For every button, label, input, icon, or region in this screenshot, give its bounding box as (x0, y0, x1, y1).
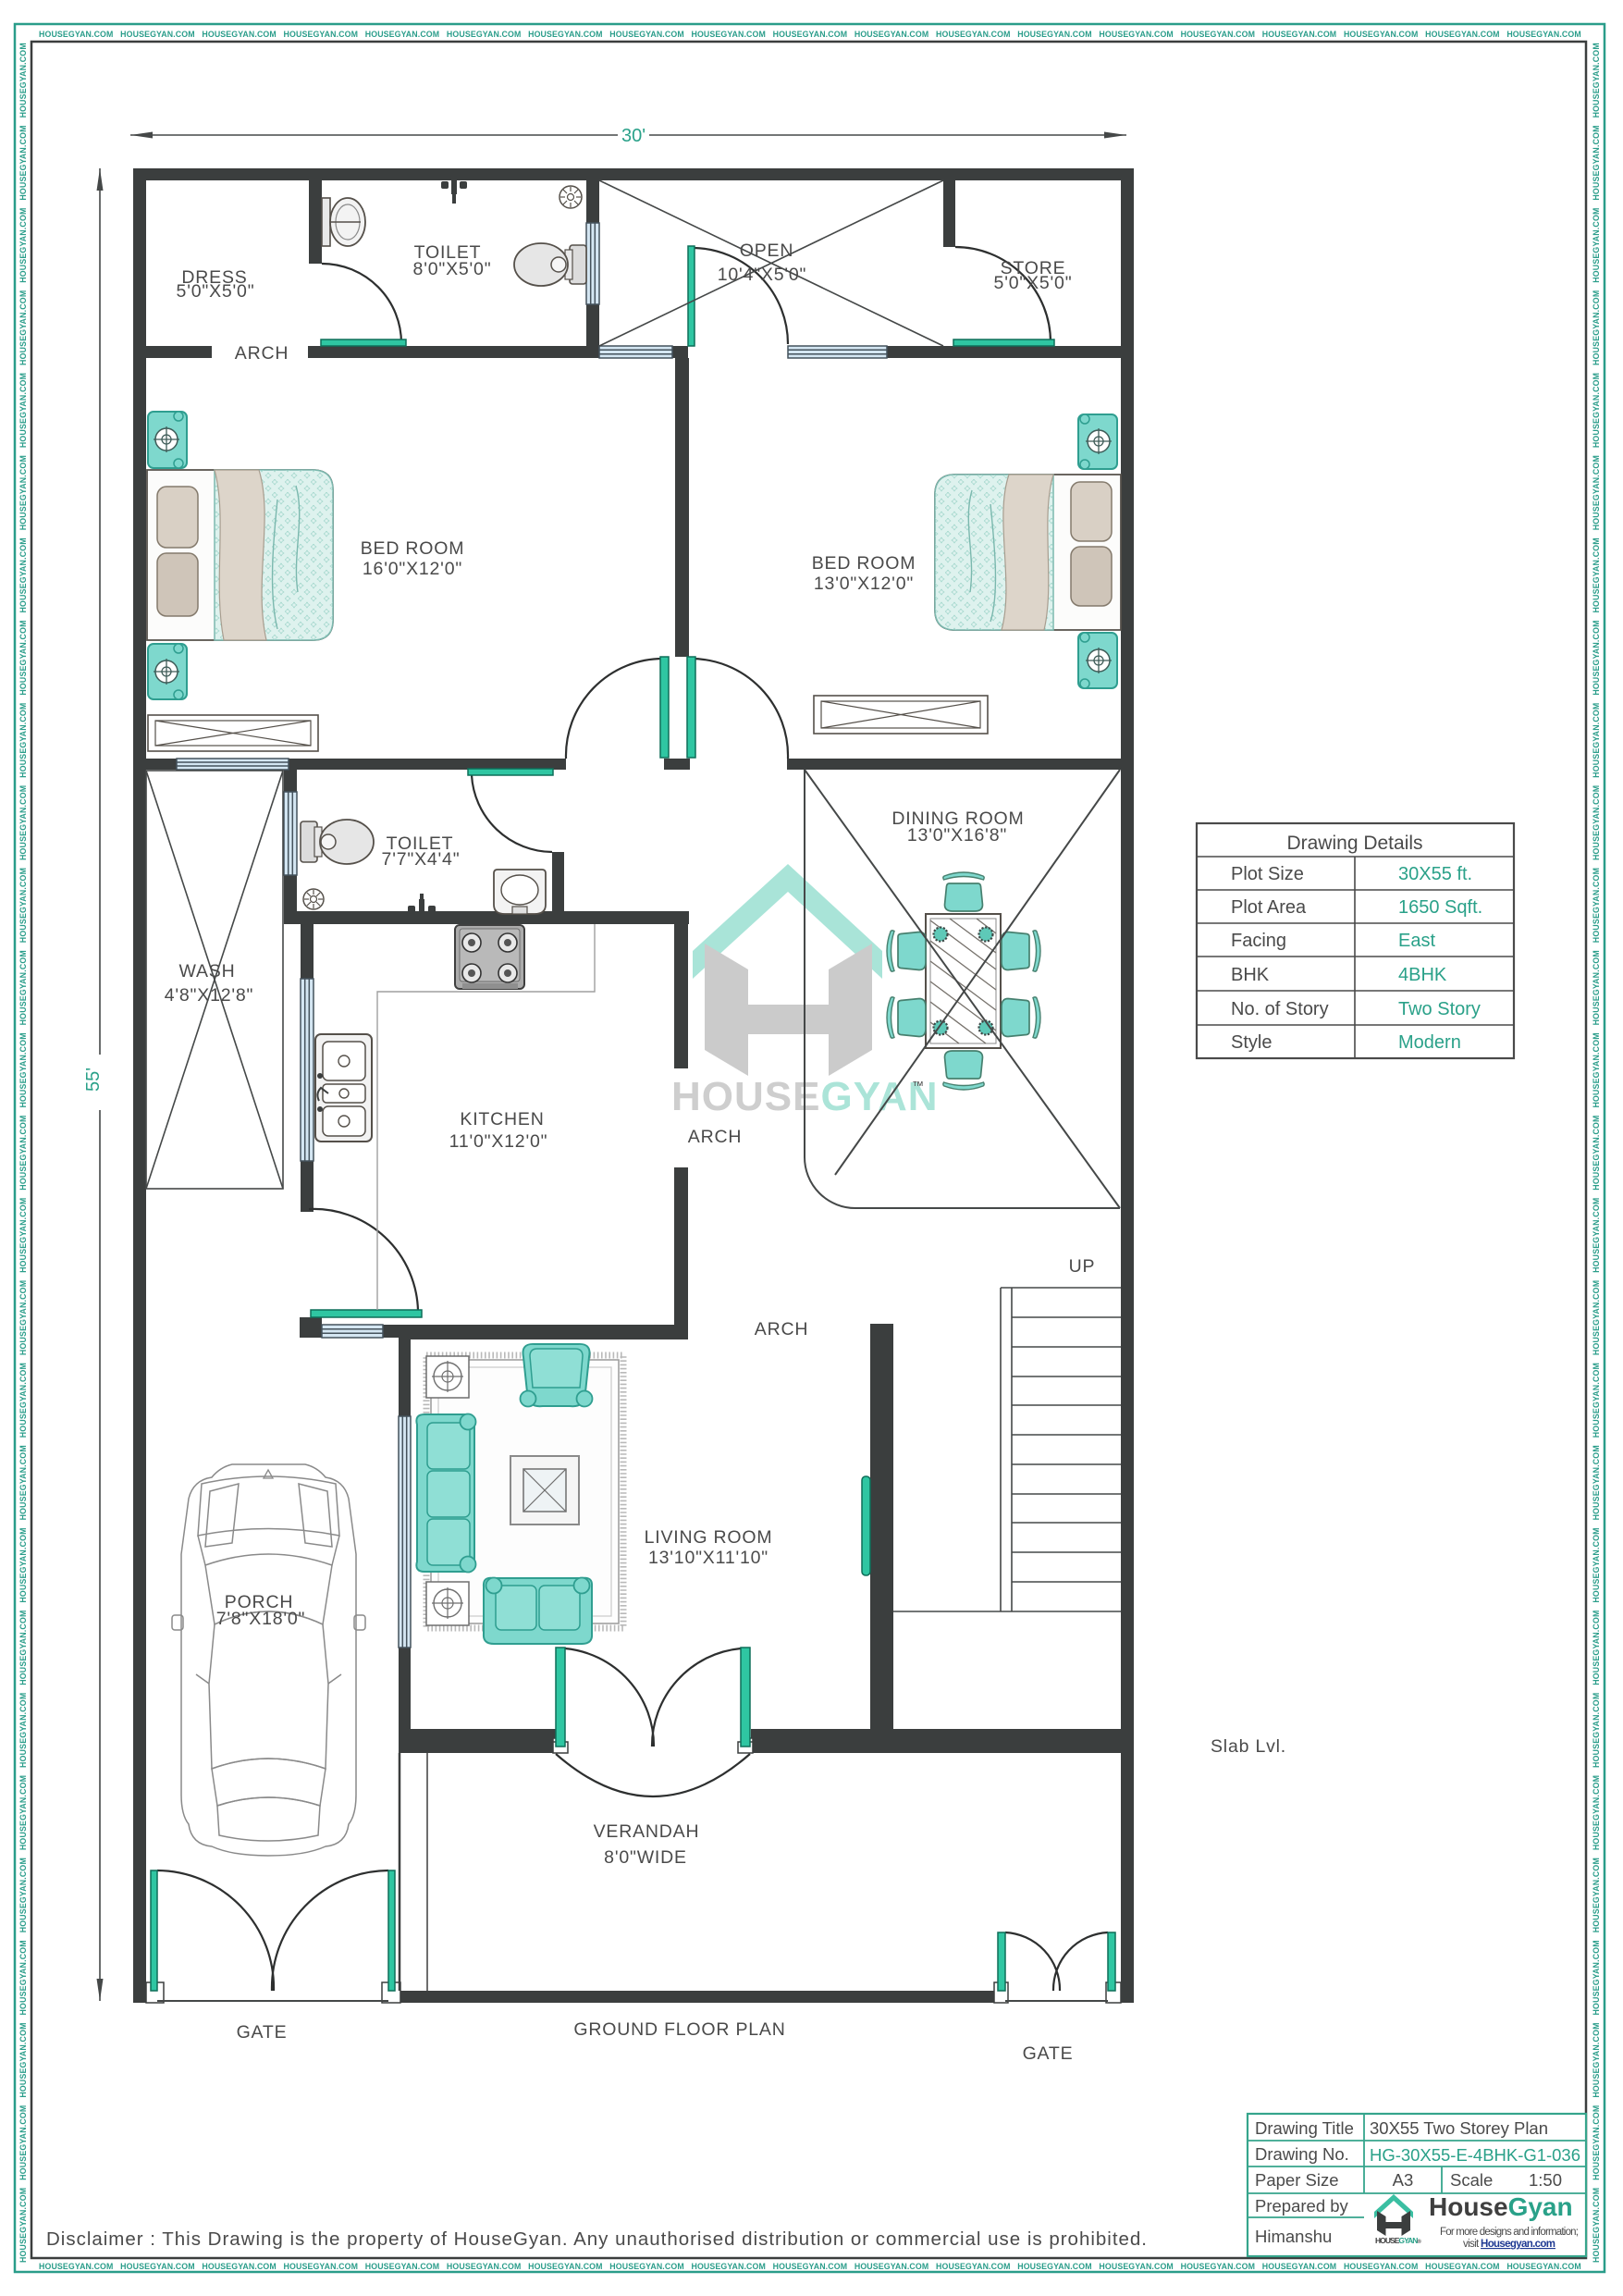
svg-text:ARCH: ARCH (755, 1319, 808, 1339)
svg-text:HOUSEGYAN®: HOUSEGYAN® (1375, 2236, 1421, 2245)
svg-text:KITCHEN: KITCHEN (460, 1109, 544, 1129)
svg-text:HG-30X55-E-4BHK-G1-036: HG-30X55-E-4BHK-G1-036 (1370, 2145, 1580, 2165)
svg-text:Style: Style (1231, 1032, 1272, 1053)
svg-text:Two Story: Two Story (1398, 999, 1481, 1019)
svg-text:8'0"X5'0": 8'0"X5'0" (413, 259, 492, 279)
svg-text:5'0"X5'0": 5'0"X5'0" (994, 273, 1073, 293)
svg-text:BHK: BHK (1231, 965, 1270, 985)
svg-text:ARCH: ARCH (235, 343, 289, 364)
svg-text:™: ™ (912, 1079, 924, 1092)
svg-text:OPEN: OPEN (740, 241, 793, 261)
svg-text:30': 30' (621, 126, 646, 146)
svg-text:For more designs and informati: For more designs and information; (1440, 2227, 1579, 2238)
svg-text:East: East (1398, 931, 1435, 951)
svg-text:GATE: GATE (237, 2022, 288, 2043)
svg-text:4'8"X12'8": 4'8"X12'8" (165, 985, 254, 1006)
svg-text:13'10"X11'10": 13'10"X11'10" (648, 1548, 768, 1568)
svg-text:4BHK: 4BHK (1398, 965, 1447, 985)
svg-text:ARCH: ARCH (688, 1127, 742, 1147)
svg-text:GROUND FLOOR PLAN: GROUND FLOOR PLAN (573, 2019, 785, 2040)
svg-text:GATE: GATE (1023, 2043, 1074, 2064)
svg-text:A3: A3 (1393, 2170, 1414, 2190)
svg-text:7'7"X4'4": 7'7"X4'4" (382, 849, 461, 870)
svg-text:13'0"X12'0": 13'0"X12'0" (814, 574, 914, 594)
svg-text:HOUSEGYAN.COM HOUSEGYAN.COM: HOUSEGYAN.COM HOUSEGYAN.COM HOUSEGYAN.CO… (18, 43, 28, 2263)
svg-text:Paper Size: Paper Size (1255, 2170, 1339, 2190)
svg-text:30X55 Two Storey Plan: 30X55 Two Storey Plan (1370, 2118, 1548, 2138)
svg-text:HOUSEGYAN.COM HOUSEGYAN.COM: HOUSEGYAN.COM HOUSEGYAN.COM HOUSEGYAN.CO… (39, 30, 1581, 39)
svg-text:1:50: 1:50 (1529, 2170, 1562, 2190)
svg-text:7'8"X18'0": 7'8"X18'0" (216, 1609, 306, 1629)
svg-text:No. of Story: No. of Story (1231, 999, 1329, 1019)
svg-text:10'4"X5'0": 10'4"X5'0" (718, 265, 807, 285)
svg-text:16'0"X12'0": 16'0"X12'0" (363, 559, 462, 579)
svg-text:30X55 ft.: 30X55 ft. (1398, 864, 1472, 884)
svg-text:Facing: Facing (1231, 931, 1286, 951)
svg-text:WASH: WASH (179, 961, 236, 981)
svg-text:Disclaimer : This Drawing is t: Disclaimer : This Drawing is the propert… (46, 2228, 1147, 2250)
svg-text:Prepared by: Prepared by (1255, 2196, 1349, 2216)
svg-text:Modern: Modern (1398, 1032, 1461, 1053)
svg-text:HouseGyan: HouseGyan (1429, 2192, 1573, 2221)
svg-text:HOUSEGYAN.COM HOUSEGYAN.COM: HOUSEGYAN.COM HOUSEGYAN.COM HOUSEGYAN.CO… (39, 2262, 1581, 2271)
svg-text:Plot Area: Plot Area (1231, 897, 1307, 918)
svg-text:LIVING ROOM: LIVING ROOM (645, 1527, 773, 1548)
svg-text:5'0"X5'0": 5'0"X5'0" (177, 281, 255, 302)
svg-text:Scale: Scale (1450, 2170, 1493, 2190)
svg-text:HOUSEGYAN.COM HOUSEGYAN.COM: HOUSEGYAN.COM HOUSEGYAN.COM HOUSEGYAN.CO… (1592, 43, 1601, 2263)
svg-text:Drawing Title: Drawing Title (1255, 2118, 1354, 2138)
svg-text:55': 55' (83, 1068, 104, 1092)
svg-text:VERANDAH: VERANDAH (594, 1821, 700, 1842)
svg-text:BED ROOM: BED ROOM (812, 553, 916, 574)
svg-text:Himanshu: Himanshu (1255, 2227, 1332, 2246)
svg-text:13'0"X16'8": 13'0"X16'8" (907, 825, 1007, 846)
svg-text:UP: UP (1069, 1256, 1096, 1277)
svg-text:visit Housegyan.com: visit Housegyan.com (1463, 2239, 1555, 2250)
svg-text:1650 Sqft.: 1650 Sqft. (1398, 897, 1482, 918)
svg-text:BED ROOM: BED ROOM (361, 538, 465, 559)
svg-text:Slab Lvl.: Slab Lvl. (1211, 1736, 1286, 1757)
svg-text:Plot Size: Plot Size (1231, 864, 1304, 884)
svg-text:8'0"WIDE: 8'0"WIDE (604, 1847, 687, 1868)
svg-text:Drawing No.: Drawing No. (1255, 2144, 1349, 2164)
svg-text:11'0"X12'0": 11'0"X12'0" (449, 1131, 548, 1152)
svg-text:Drawing Details: Drawing Details (1286, 833, 1422, 854)
